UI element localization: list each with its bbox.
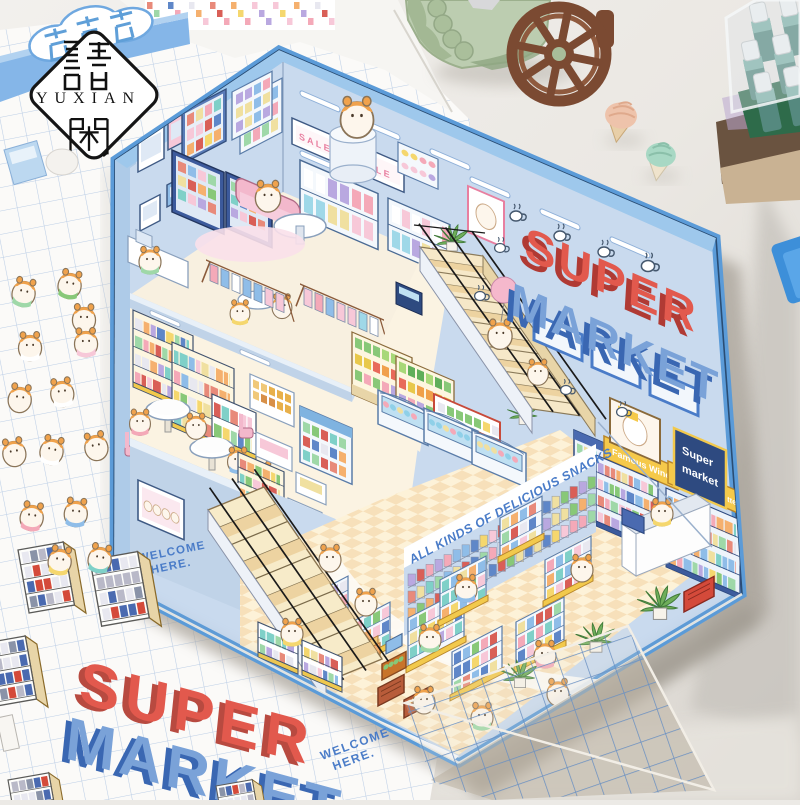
svg-text:YUXIAN: YUXIAN — [36, 90, 141, 107]
